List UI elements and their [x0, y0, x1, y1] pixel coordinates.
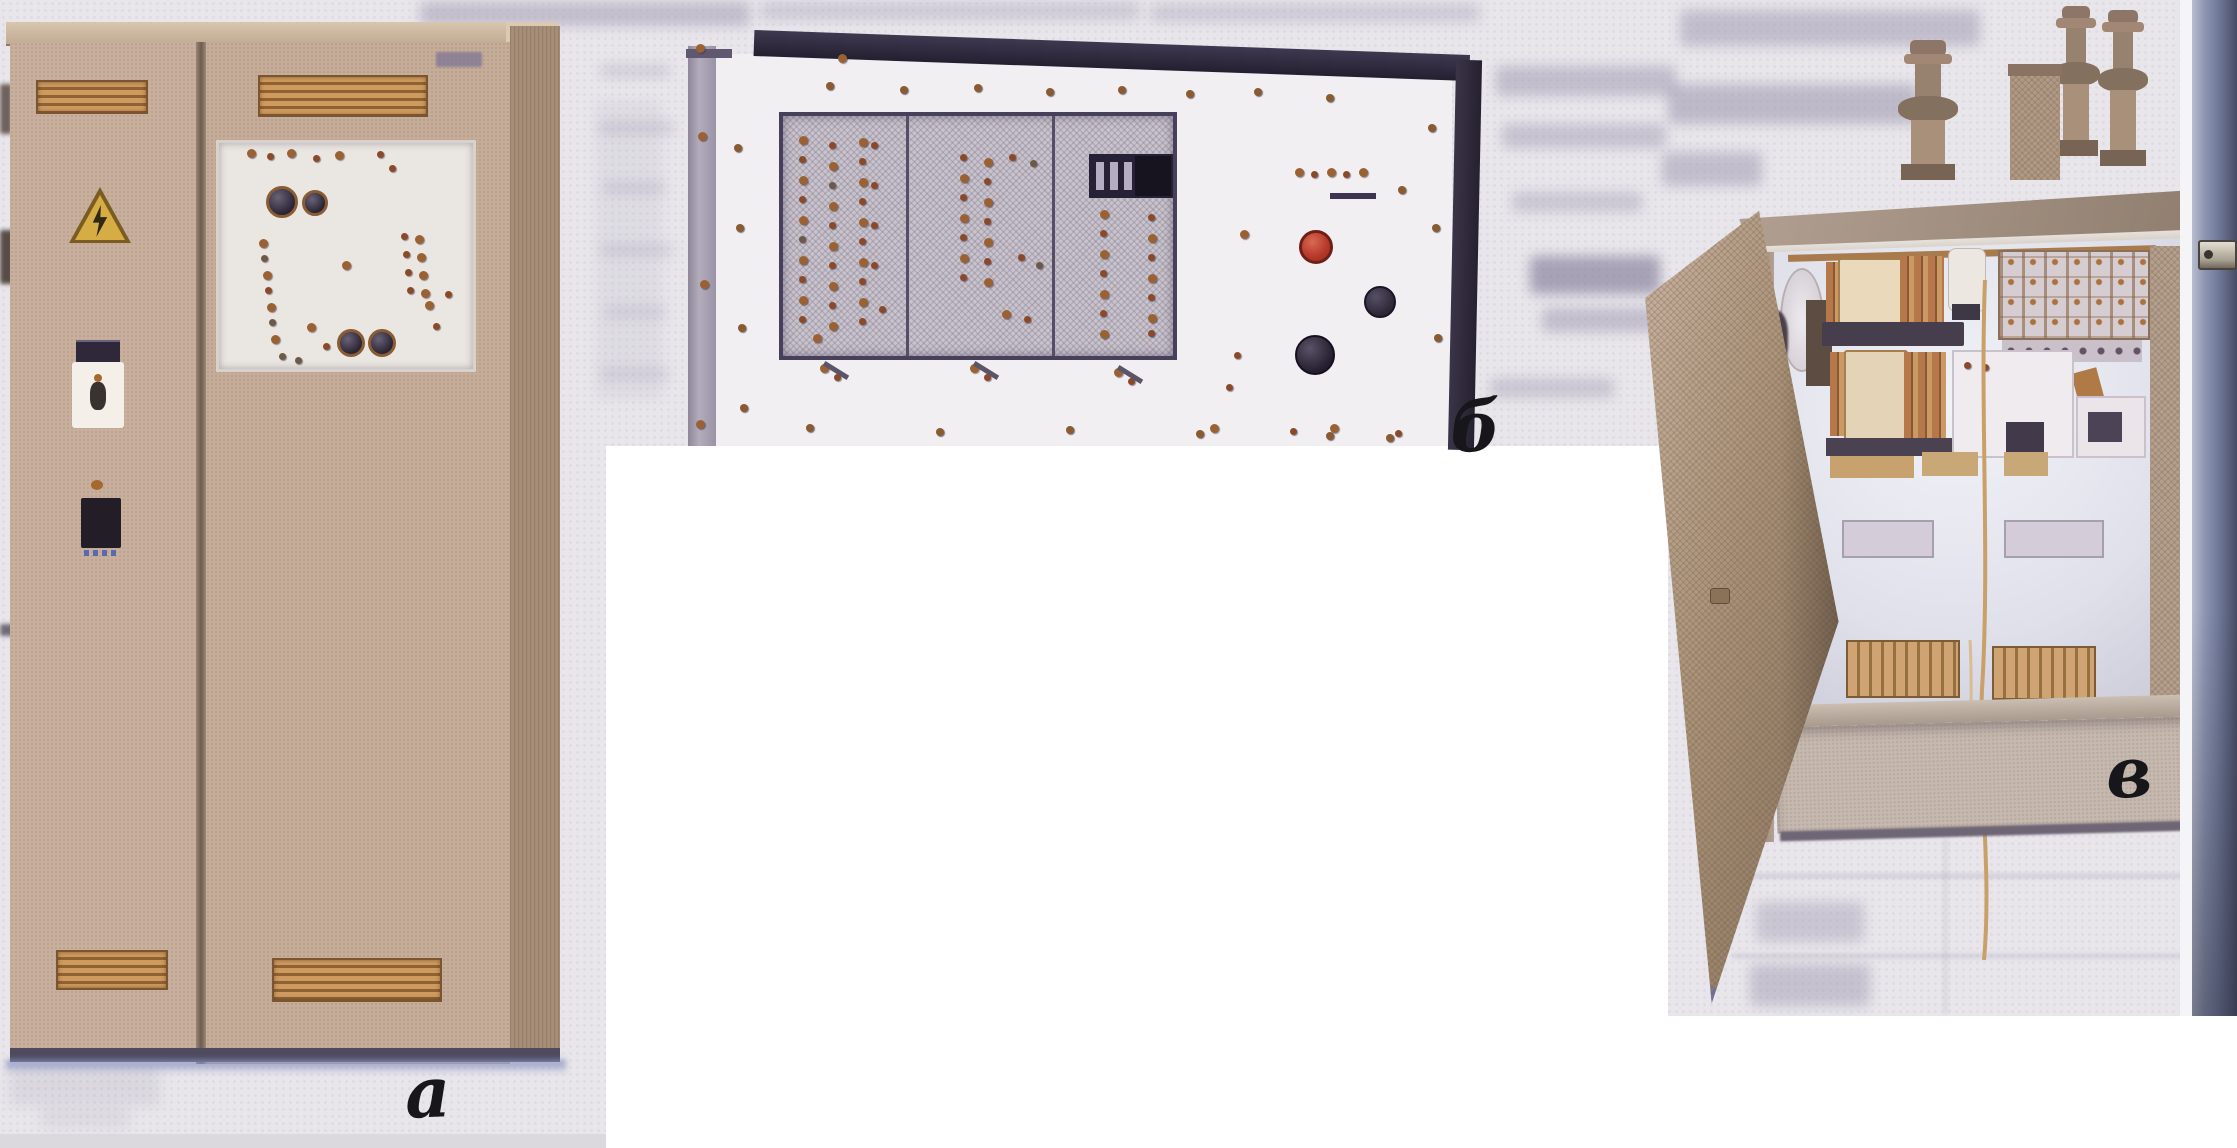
cabinet-door-gap	[196, 42, 206, 1064]
scanned-page: а б в	[0, 0, 2237, 1148]
indicator-dot	[91, 480, 103, 490]
photo-floor-cabinet	[6, 22, 566, 1066]
label-plate	[76, 340, 120, 362]
insulator-bushing	[1898, 40, 1958, 200]
vent-grille	[272, 958, 442, 1002]
insulator-bushing	[2098, 10, 2148, 188]
page-margin-gap	[2180, 0, 2192, 1016]
rack-subpanel	[779, 112, 1177, 360]
small-knob	[1364, 286, 1396, 318]
vent-grille	[258, 75, 428, 117]
cabinet-indicator-panel	[216, 140, 476, 372]
junction-block	[2010, 70, 2060, 180]
display-window	[1089, 154, 1173, 198]
cabinet-model-mark	[436, 52, 482, 67]
dark-knob	[1295, 335, 1335, 375]
transformer-assembly	[1806, 256, 1966, 480]
caption-v: в	[2105, 737, 2153, 809]
hanging-wire	[1960, 260, 2030, 1000]
caption-b: б	[1449, 391, 1502, 463]
push-button-black	[81, 498, 121, 548]
rack-left-rail	[688, 46, 716, 446]
page-edge-strip	[2192, 0, 2237, 1016]
white-cutout-center	[606, 446, 1668, 1148]
vent-grille	[56, 950, 168, 990]
photo-wall-box	[1630, 0, 2230, 1020]
binder-clasp	[2198, 240, 2237, 270]
relay-block	[2076, 396, 2146, 458]
terminal-strip	[1846, 640, 1960, 698]
white-cutout-bottom-right	[1668, 1016, 2237, 1148]
caption-a: а	[404, 1057, 452, 1129]
cabinet-side-panel	[510, 26, 560, 1058]
key-switch	[72, 362, 124, 428]
red-button	[1299, 230, 1333, 264]
photo-rack-panel	[686, 24, 1492, 448]
vent-grille	[36, 80, 148, 114]
